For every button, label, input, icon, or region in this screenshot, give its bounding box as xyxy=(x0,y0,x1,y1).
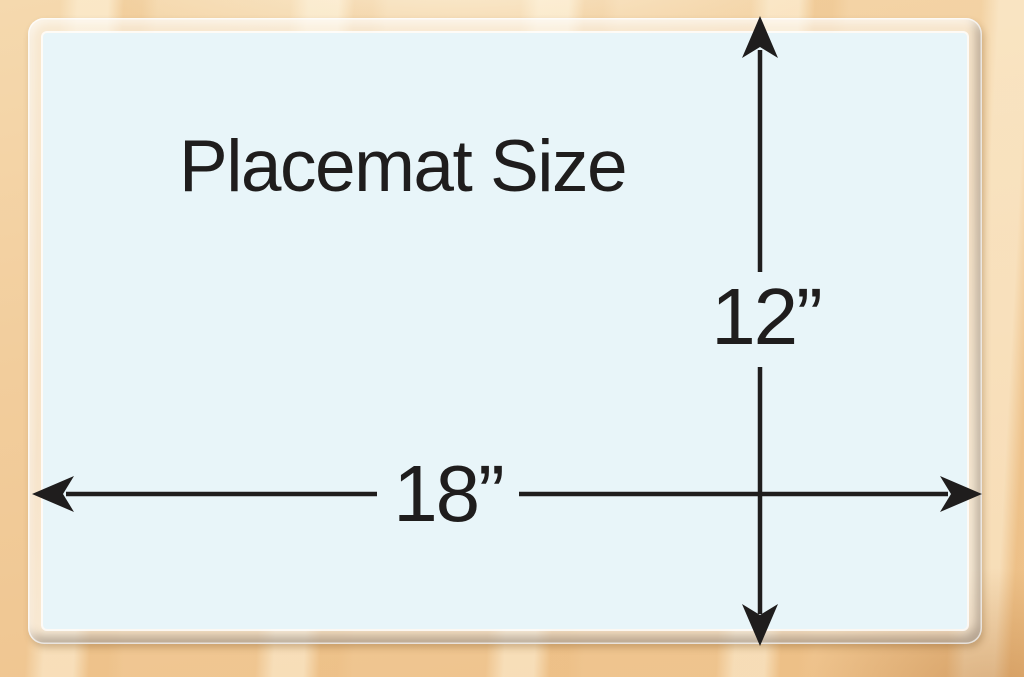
placemat-title: Placemat Size xyxy=(179,130,626,203)
laminated-placemat xyxy=(28,18,982,644)
width-dimension-label: 18” xyxy=(393,454,503,534)
placemat-size-diagram: Placemat Size 12” 18” xyxy=(0,0,1024,677)
height-dimension-label: 12” xyxy=(711,277,821,357)
placemat-surface xyxy=(43,33,967,629)
